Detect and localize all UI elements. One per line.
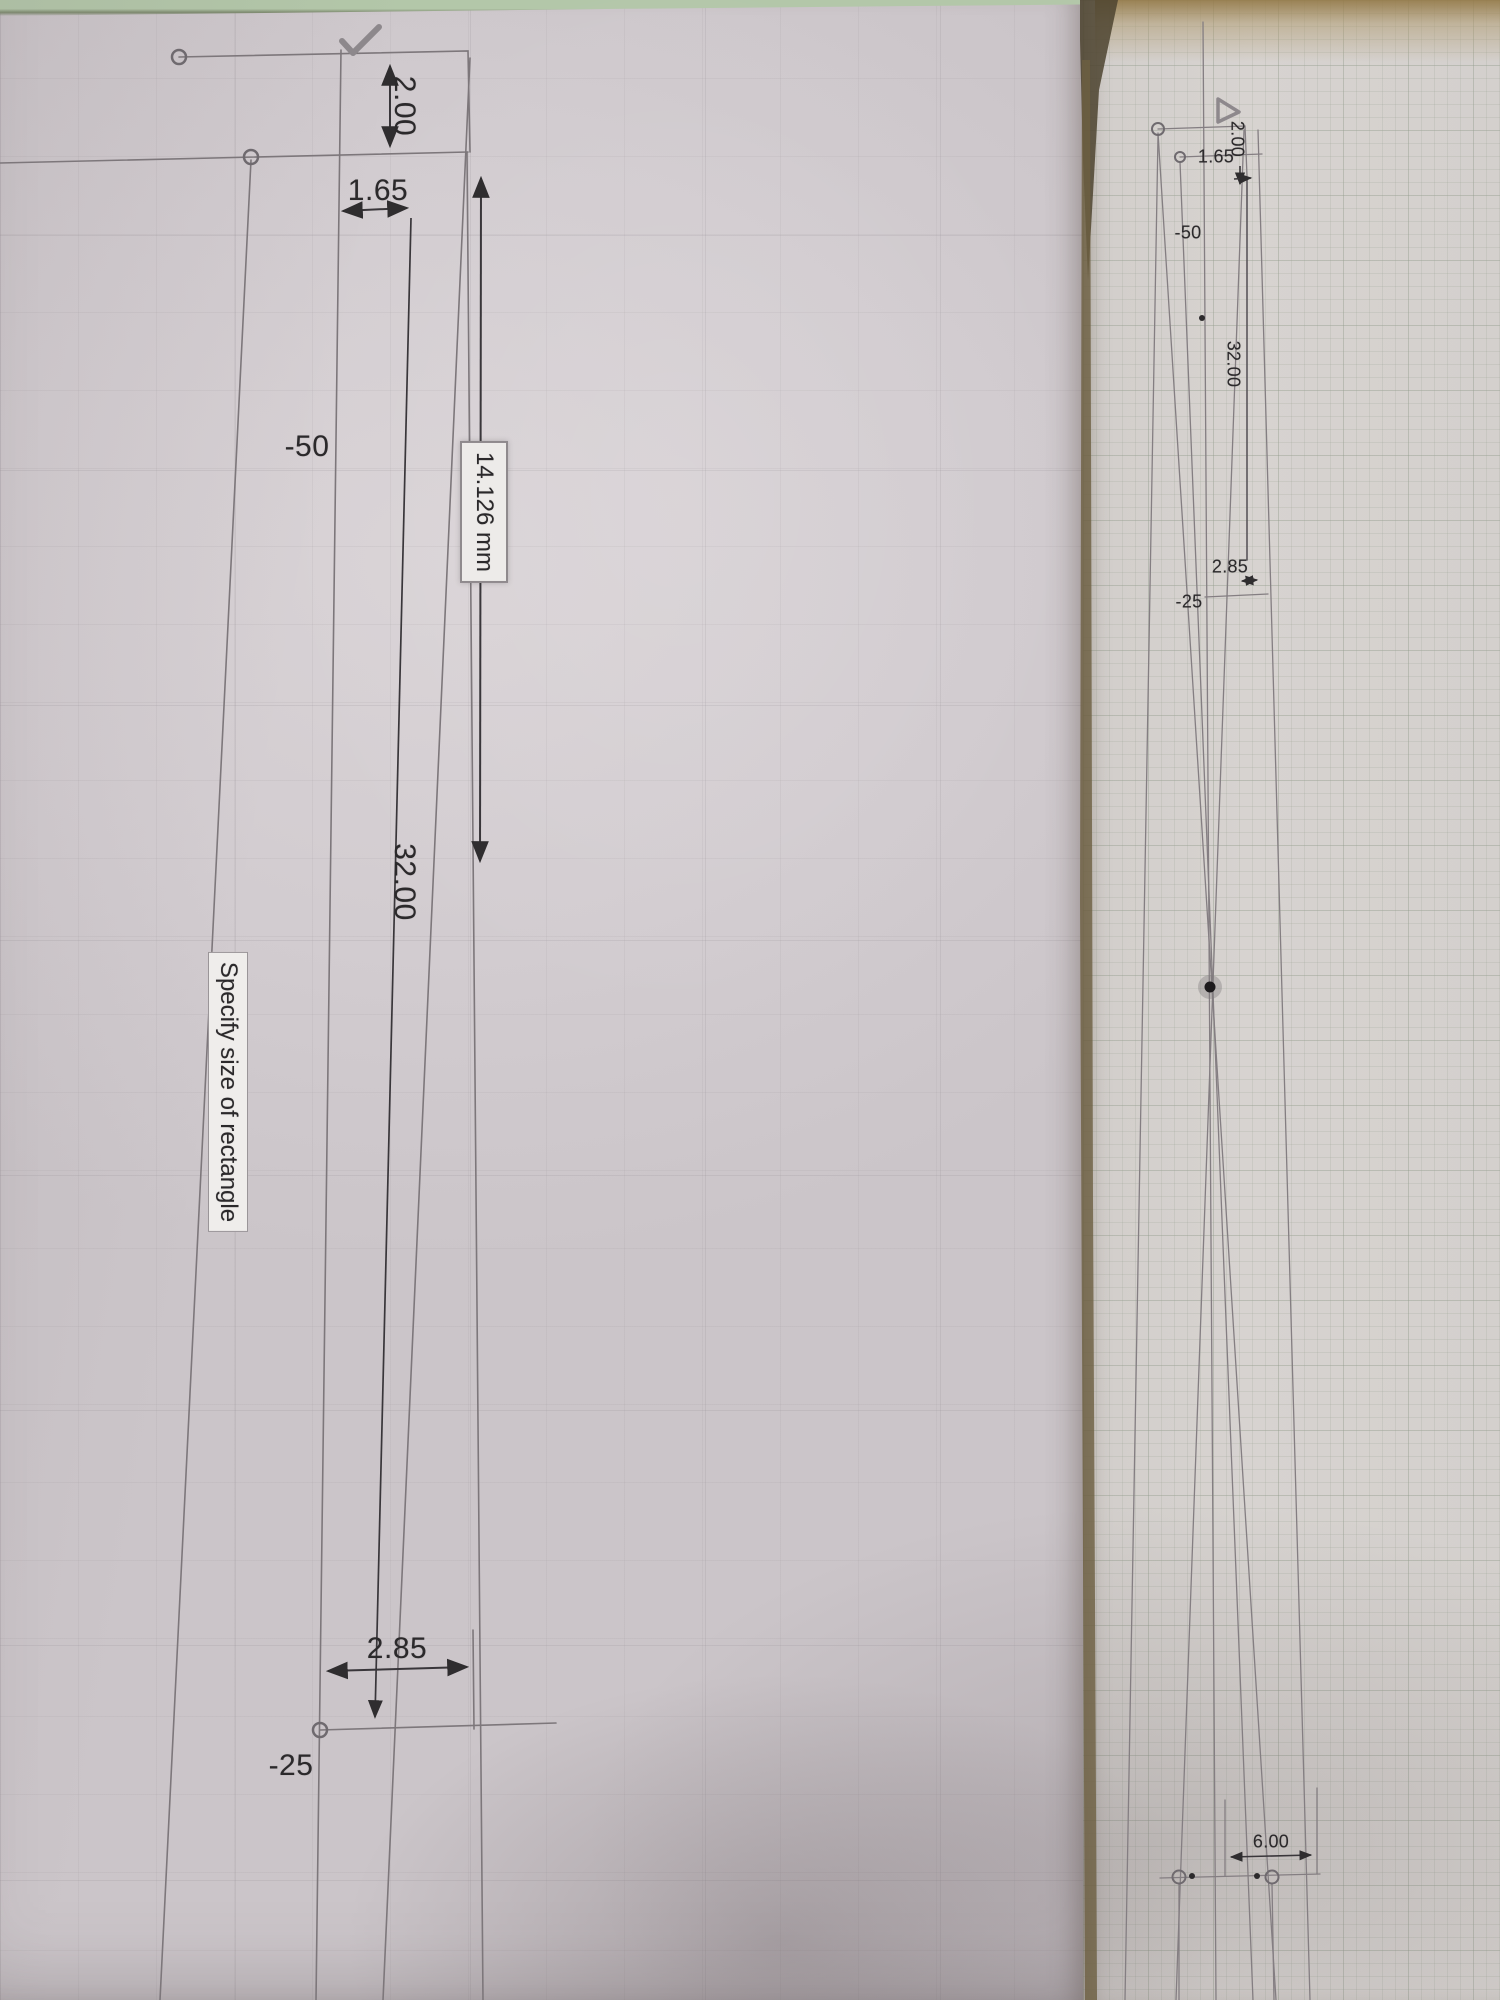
left-sketch-lines xyxy=(0,50,556,2000)
center-point xyxy=(1205,982,1216,993)
dim-line-1-65 xyxy=(1234,178,1251,179)
small-point xyxy=(1189,1873,1195,1879)
triangle-icon xyxy=(1218,99,1239,122)
coord-label-neg50: -50 xyxy=(285,430,330,464)
right-sketch-lines xyxy=(1125,22,1320,2000)
tooltip-specify-size: Specify size of rectangle xyxy=(208,952,248,1232)
dim-line-1-65 xyxy=(343,208,407,211)
coord-label-neg50: -50 xyxy=(1175,223,1202,244)
dim-label-2-85: 2.85 xyxy=(1212,557,1248,578)
sheet-gap xyxy=(1080,0,1118,2000)
dim-line-6-00 xyxy=(1231,1855,1311,1857)
left-sketch-points xyxy=(172,50,327,1737)
coord-label-neg25: -25 xyxy=(269,1749,314,1783)
small-point xyxy=(1254,1873,1260,1879)
dim-label-2-00: 2.00 xyxy=(387,76,421,136)
dim-label-6-00: 6.00 xyxy=(1253,1832,1289,1853)
dim-label-2-85: 2.85 xyxy=(367,1632,427,1666)
dim-label-32-00: 32.00 xyxy=(387,843,421,921)
checkmark-icon xyxy=(342,27,379,53)
dim-label-1-65: 1.65 xyxy=(348,174,408,208)
dim-line-2-85 xyxy=(1242,580,1257,581)
dimension-input: 14.126 mm xyxy=(460,441,508,583)
photo-of-printed-cad-sketches: 2.00 1.65 -50 14.126 mm 32.00 Specify si… xyxy=(0,0,1500,2000)
dim-label-1-65: 1.65 xyxy=(1198,147,1234,168)
dim-label-32-00: 32.00 xyxy=(1223,341,1244,388)
small-point xyxy=(1199,315,1205,321)
sketch-point-circle xyxy=(1266,1871,1279,1884)
coord-label-neg25: -25 xyxy=(1176,592,1203,613)
right-sketch-points xyxy=(1152,123,1279,1884)
